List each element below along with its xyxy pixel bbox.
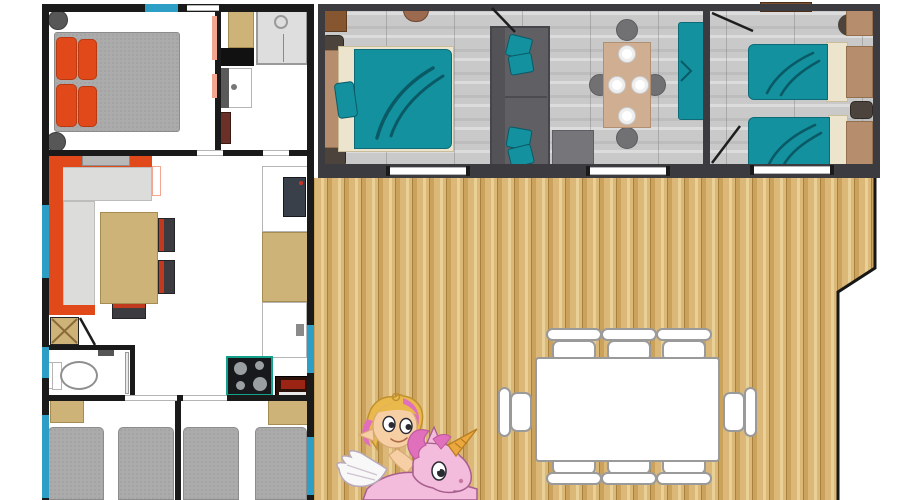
burner	[234, 362, 247, 375]
shower-drain	[274, 15, 288, 29]
bed-pillow	[78, 39, 97, 80]
unicorn-nostril	[459, 479, 463, 483]
terrace-chair-seat	[723, 392, 745, 432]
terrace-chair-back	[744, 387, 757, 437]
sofa-seat-line	[505, 96, 547, 98]
lower-cabinet	[268, 399, 310, 425]
door-post	[386, 166, 390, 176]
radiator	[152, 166, 161, 196]
plate	[608, 76, 626, 94]
sofa-backrest	[492, 28, 505, 166]
shower-door-leaf	[212, 16, 217, 60]
burner	[255, 361, 264, 370]
cabinet-x-pattern	[51, 318, 78, 344]
single-bed	[183, 427, 239, 500]
window	[42, 415, 49, 498]
door-post	[466, 166, 470, 176]
terrace-chair-seat	[510, 392, 532, 432]
wall-wc-top	[42, 345, 135, 350]
dining-chair	[158, 260, 175, 294]
bedside-stool	[48, 10, 68, 30]
window	[42, 205, 49, 278]
window	[307, 325, 314, 373]
twin-bed-headboard	[846, 46, 873, 98]
burner	[236, 381, 245, 390]
shower-door-leaf	[212, 74, 217, 98]
sliding-door	[263, 150, 289, 156]
bed-pillow	[78, 86, 97, 127]
kitchen-cabinet	[262, 232, 310, 302]
window	[307, 437, 314, 495]
wall-top-right-unit	[318, 4, 880, 11]
wall-left-right-unit	[318, 4, 325, 178]
twin-bed-teal	[748, 117, 830, 171]
wall-right-right-unit	[873, 4, 880, 178]
sliding-door	[390, 167, 466, 175]
twin-bed-teal	[748, 44, 828, 100]
bed-pillow	[56, 37, 77, 80]
dining-chair	[158, 218, 175, 252]
wall-top	[42, 4, 314, 12]
bedside-stool	[46, 132, 66, 152]
terrace-table	[535, 357, 720, 462]
sofa-pillow-teal	[507, 52, 534, 76]
shelf-tan	[846, 10, 873, 36]
double-bed-teal	[354, 49, 452, 149]
plate	[618, 45, 636, 63]
terrace-chair-back	[656, 472, 712, 485]
sliding-door	[754, 166, 830, 174]
plate	[631, 76, 649, 94]
nightstand	[850, 101, 873, 119]
coffee-table	[552, 130, 594, 168]
twin-bed-frame	[826, 42, 848, 102]
toilet-bowl	[60, 361, 98, 390]
sliding-door	[590, 167, 666, 175]
wall-right	[307, 4, 314, 500]
single-bed	[118, 427, 174, 500]
round-stool	[616, 127, 638, 149]
wall-wc-right	[130, 345, 135, 400]
terrace-chair-back	[546, 472, 602, 485]
counter-black	[218, 48, 254, 66]
girl-pupil	[406, 424, 412, 430]
single-bed	[48, 427, 104, 500]
dining-chair	[112, 302, 146, 319]
sliding-door	[183, 395, 227, 401]
round-stool	[616, 19, 638, 41]
wc-door-leaf	[125, 352, 129, 394]
mascot-unicorn-girl	[333, 393, 483, 500]
door-post	[830, 165, 834, 175]
wall-bedroom-divider	[175, 395, 181, 500]
terrace-chair-back	[601, 472, 657, 485]
washbasin-faucet	[231, 84, 237, 90]
wardrobe	[228, 8, 254, 48]
shower-glass-line	[283, 34, 284, 62]
fridge-led	[299, 181, 303, 185]
door-post	[666, 166, 670, 176]
sliding-door	[197, 150, 223, 156]
washbasin-side	[220, 68, 229, 108]
sink-faucet	[296, 324, 304, 336]
dining-table	[100, 212, 158, 304]
bedside-cabinet	[50, 399, 84, 423]
plate	[618, 107, 636, 125]
unicorn-horn	[448, 429, 477, 456]
unicorn-eye-highlight	[437, 468, 440, 471]
wall-bedroom-partition	[703, 11, 710, 164]
burner	[253, 377, 267, 391]
sofa-back-left	[48, 167, 63, 315]
side-cabinet	[50, 317, 79, 345]
sliding-door	[125, 395, 177, 401]
sofa-seat-top	[55, 167, 152, 201]
stove-hob	[226, 356, 273, 396]
floorplan-canvas	[0, 0, 900, 500]
bed-cover-folds	[355, 50, 453, 150]
oven-label	[281, 380, 305, 389]
door-post	[586, 166, 590, 176]
bed-cover-folds	[749, 45, 829, 101]
door-post	[750, 165, 754, 175]
sofa-seat-left	[63, 201, 95, 309]
bed-pillow	[56, 84, 77, 127]
window	[42, 347, 49, 378]
sliding-door	[187, 5, 219, 11]
sofa-arm-bottom	[48, 305, 95, 315]
girl-pupil	[389, 422, 395, 428]
window	[145, 4, 178, 12]
single-bed	[255, 427, 307, 500]
